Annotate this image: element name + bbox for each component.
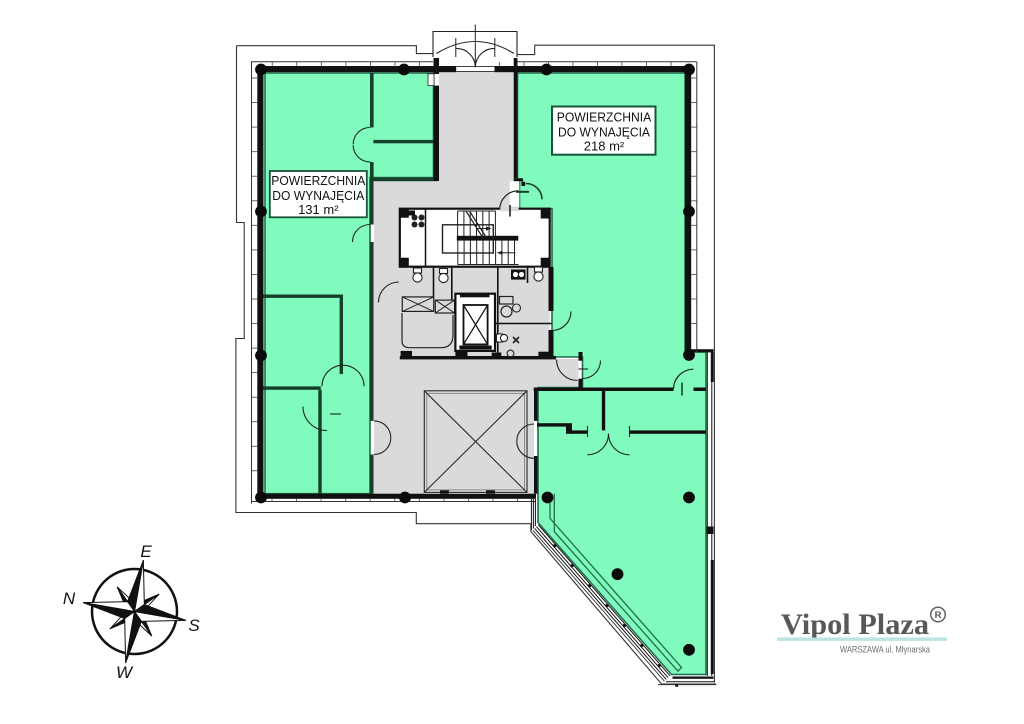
svg-text:S: S <box>188 616 200 635</box>
svg-text:POWIERZCHNIA: POWIERZCHNIA <box>271 173 365 188</box>
svg-text:R: R <box>935 610 942 621</box>
svg-text:POWIERZCHNIA: POWIERZCHNIA <box>557 109 652 124</box>
svg-text:E: E <box>140 542 152 561</box>
svg-text:DO WYNAJĘCIA: DO WYNAJĘCIA <box>272 188 364 203</box>
svg-text:W: W <box>116 663 134 682</box>
svg-text:DO WYNAJĘCIA: DO WYNAJĘCIA <box>558 125 650 140</box>
svg-text:218 m²: 218 m² <box>584 139 625 154</box>
svg-text:Vipol Plaza: Vipol Plaza <box>781 608 929 641</box>
svg-text:WARSZAWA ul. Młynarska: WARSZAWA ul. Młynarska <box>840 645 930 655</box>
svg-text:N: N <box>63 589 76 608</box>
svg-text:131 m²: 131 m² <box>298 202 339 217</box>
